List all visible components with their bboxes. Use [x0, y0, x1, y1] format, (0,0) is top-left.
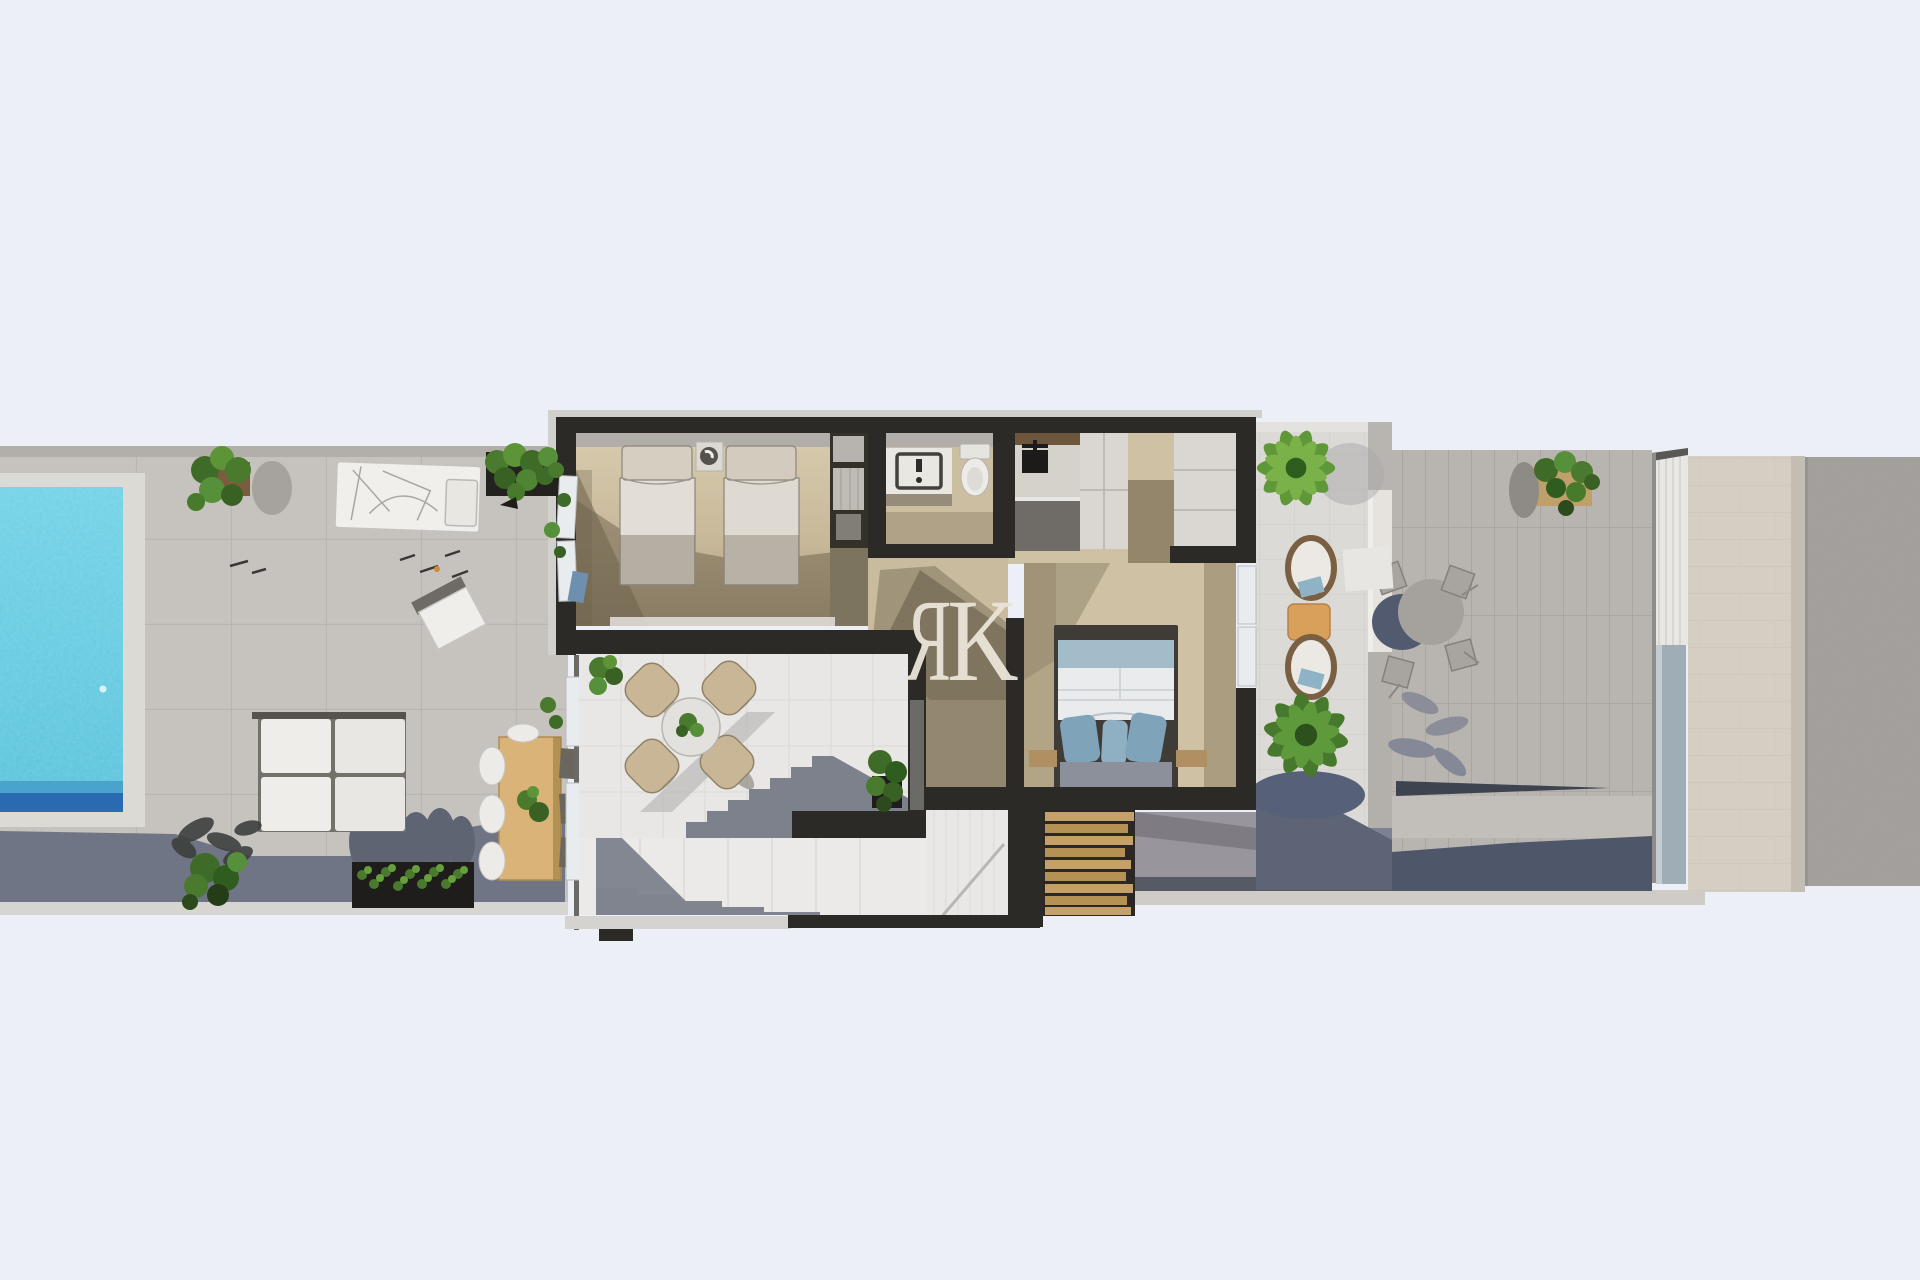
svg-text:R: R	[905, 575, 951, 706]
svg-text:K: K	[947, 575, 1019, 706]
